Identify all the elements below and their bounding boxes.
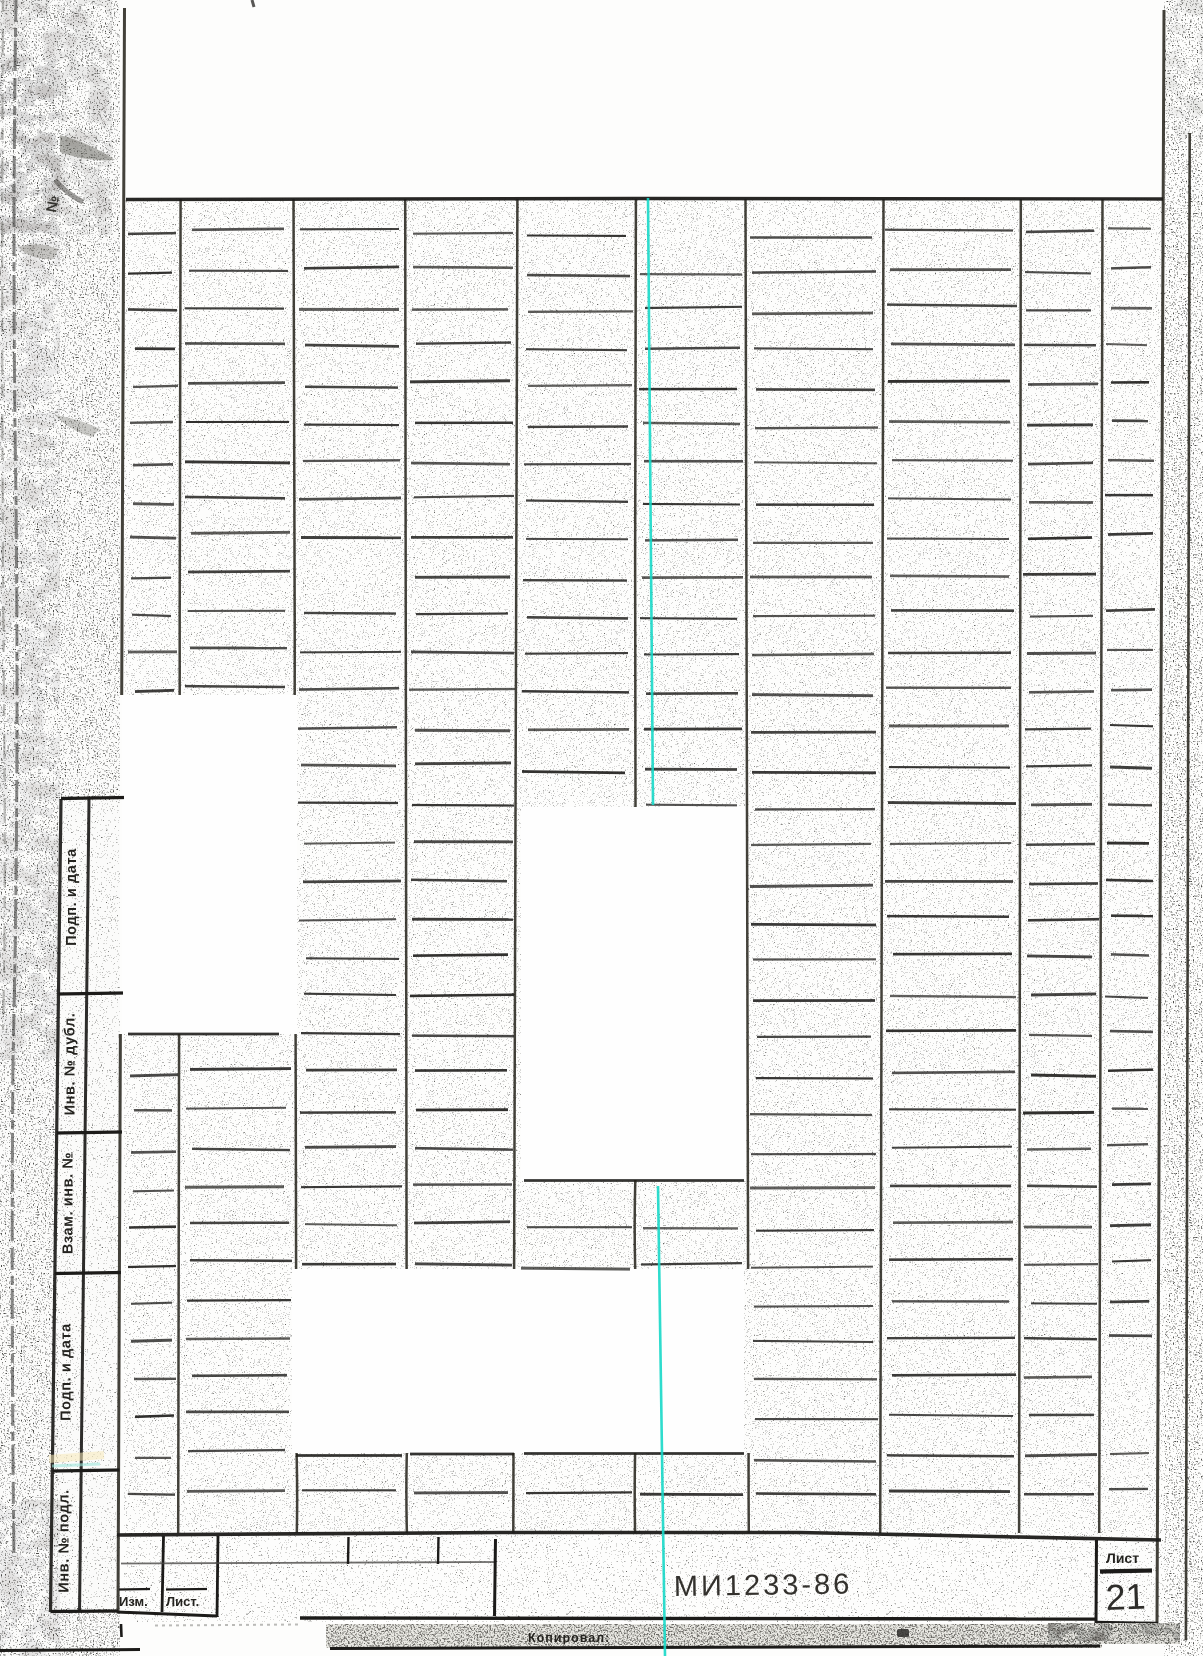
svg-text:Копировал:: Копировал: xyxy=(528,1631,610,1645)
svg-text:Лист: Лист xyxy=(1106,1550,1139,1566)
svg-text:21: 21 xyxy=(1105,1576,1146,1618)
svg-text:Лист.: Лист. xyxy=(166,1594,199,1609)
svg-text:№: № xyxy=(43,194,63,213)
svg-text:Инв. № дубл.: Инв. № дубл. xyxy=(63,1013,79,1116)
svg-text:Инв. № подл.: Инв. № подл. xyxy=(57,1489,73,1592)
svg-text:Подп. и дата: Подп. и дата xyxy=(59,1323,75,1421)
svg-text:Подп. и дата: Подп. и дата xyxy=(64,848,80,946)
svg-text:Изм.: Изм. xyxy=(119,1594,148,1609)
svg-text:МИ1233-86: МИ1233-86 xyxy=(674,1569,853,1603)
svg-text:Взам. инв. №: Взам. инв. № xyxy=(61,1152,77,1254)
